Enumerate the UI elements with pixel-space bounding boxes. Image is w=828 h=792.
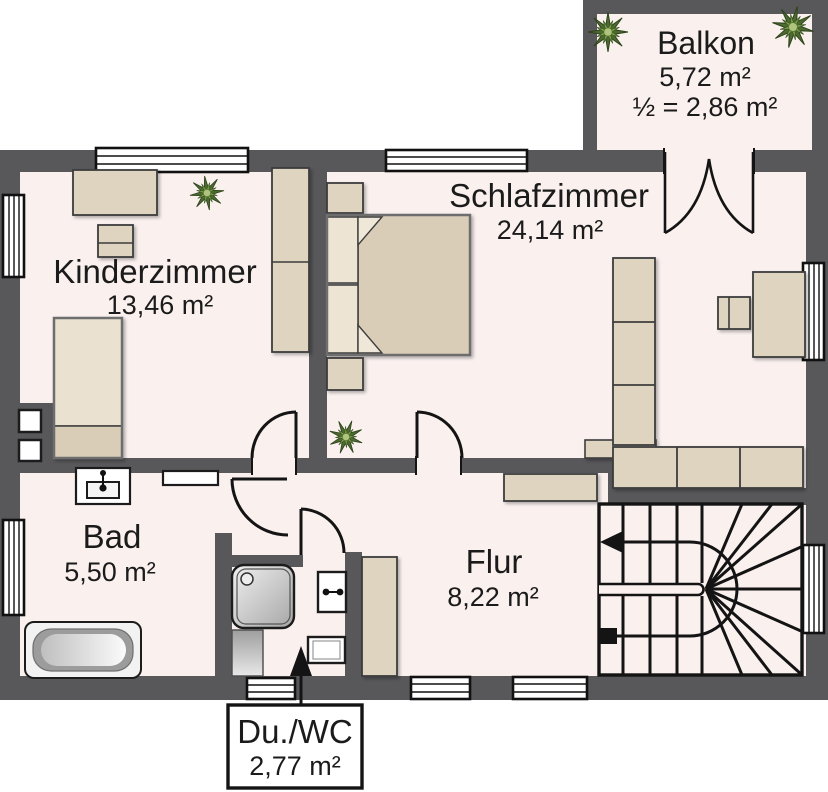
- wall-balkon-left: [583, 0, 597, 152]
- label-schlafzimmer-name: Schlafzimmer: [449, 177, 649, 214]
- bad-sink: [76, 468, 130, 504]
- shower-drain: [241, 573, 253, 585]
- schlafzimmer-wardrobe-column: [613, 258, 655, 445]
- label-kinderzimmer-name: Kinderzimmer: [53, 253, 257, 290]
- label-bad-area: 5,50 m²: [64, 557, 156, 587]
- label-flur-name: Flur: [466, 543, 523, 580]
- label-duwc-area: 2,77 m²: [249, 751, 341, 781]
- window-flur-bottom-1: [411, 677, 470, 699]
- kinderzimmer-wardrobe: [272, 168, 309, 352]
- schlafzimmer-nightstand-top: [327, 183, 363, 213]
- stair-start-marker: [600, 628, 617, 644]
- label-balkon-area: 5,72 m²: [659, 62, 751, 92]
- wall-kinder-schlaf-divider: [309, 172, 327, 473]
- plant-icon: [588, 12, 628, 52]
- schlafzimmer-chair: [718, 297, 750, 329]
- stair-center-slot: [599, 584, 704, 595]
- schlafzimmer-nightstand-bottom: [327, 358, 363, 390]
- toilet: [308, 637, 345, 663]
- flur-wardrobe: [362, 557, 397, 676]
- window-duwc-bottom: [247, 678, 295, 699]
- schlafzimmer-desk: [753, 272, 805, 357]
- window-kinderzimmer-top: [96, 148, 248, 172]
- window-schlafzimmer-top: [386, 150, 527, 171]
- label-kinderzimmer-area: 13,46 m²: [107, 290, 214, 320]
- wall-balkon-right: [812, 0, 828, 152]
- wall-duwc-right: [345, 552, 362, 676]
- wall-balkon-top: [583, 0, 828, 14]
- label-flur-area: 8,22 m²: [447, 582, 539, 612]
- window-kinderzimmer-left: [3, 195, 24, 277]
- staircase: [599, 504, 802, 675]
- chimney-shaft-1: [19, 410, 41, 432]
- window-stairs-right: [803, 545, 824, 633]
- flur-sideboard: [504, 474, 597, 501]
- opening-kinderzimmer: [252, 457, 297, 474]
- opening-schlafzimmer: [415, 457, 462, 474]
- chimney-shaft-2: [19, 440, 41, 461]
- window-bad-left: [3, 520, 24, 615]
- bathtub: [25, 622, 141, 678]
- label-bad-name: Bad: [83, 518, 142, 555]
- label-duwc-name: Du./WC: [237, 713, 353, 750]
- label-balkon-half-area: ½ = 2,86 m²: [633, 92, 778, 122]
- duwc-sink: [318, 572, 346, 612]
- label-schlafzimmer-area: 24,14 m²: [497, 215, 604, 245]
- shower-step: [232, 630, 263, 676]
- shower: [232, 565, 294, 628]
- schlafzimmer-double-bed: [327, 215, 470, 355]
- bad-radiator: [163, 471, 218, 485]
- wall-duwc-left: [215, 533, 232, 676]
- floor-plan: Balkon 5,72 m² ½ = 2,86 m² Schlafzimmer …: [0, 0, 828, 792]
- window-flur-bottom-2: [513, 677, 587, 699]
- kinderzimmer-desk: [73, 170, 157, 215]
- schlafzimmer-wardrobe-row: [613, 447, 803, 488]
- label-balkon-name: Balkon: [657, 25, 755, 61]
- kinderzimmer-bed: [54, 318, 122, 458]
- window-schlafzimmer-right: [803, 263, 824, 360]
